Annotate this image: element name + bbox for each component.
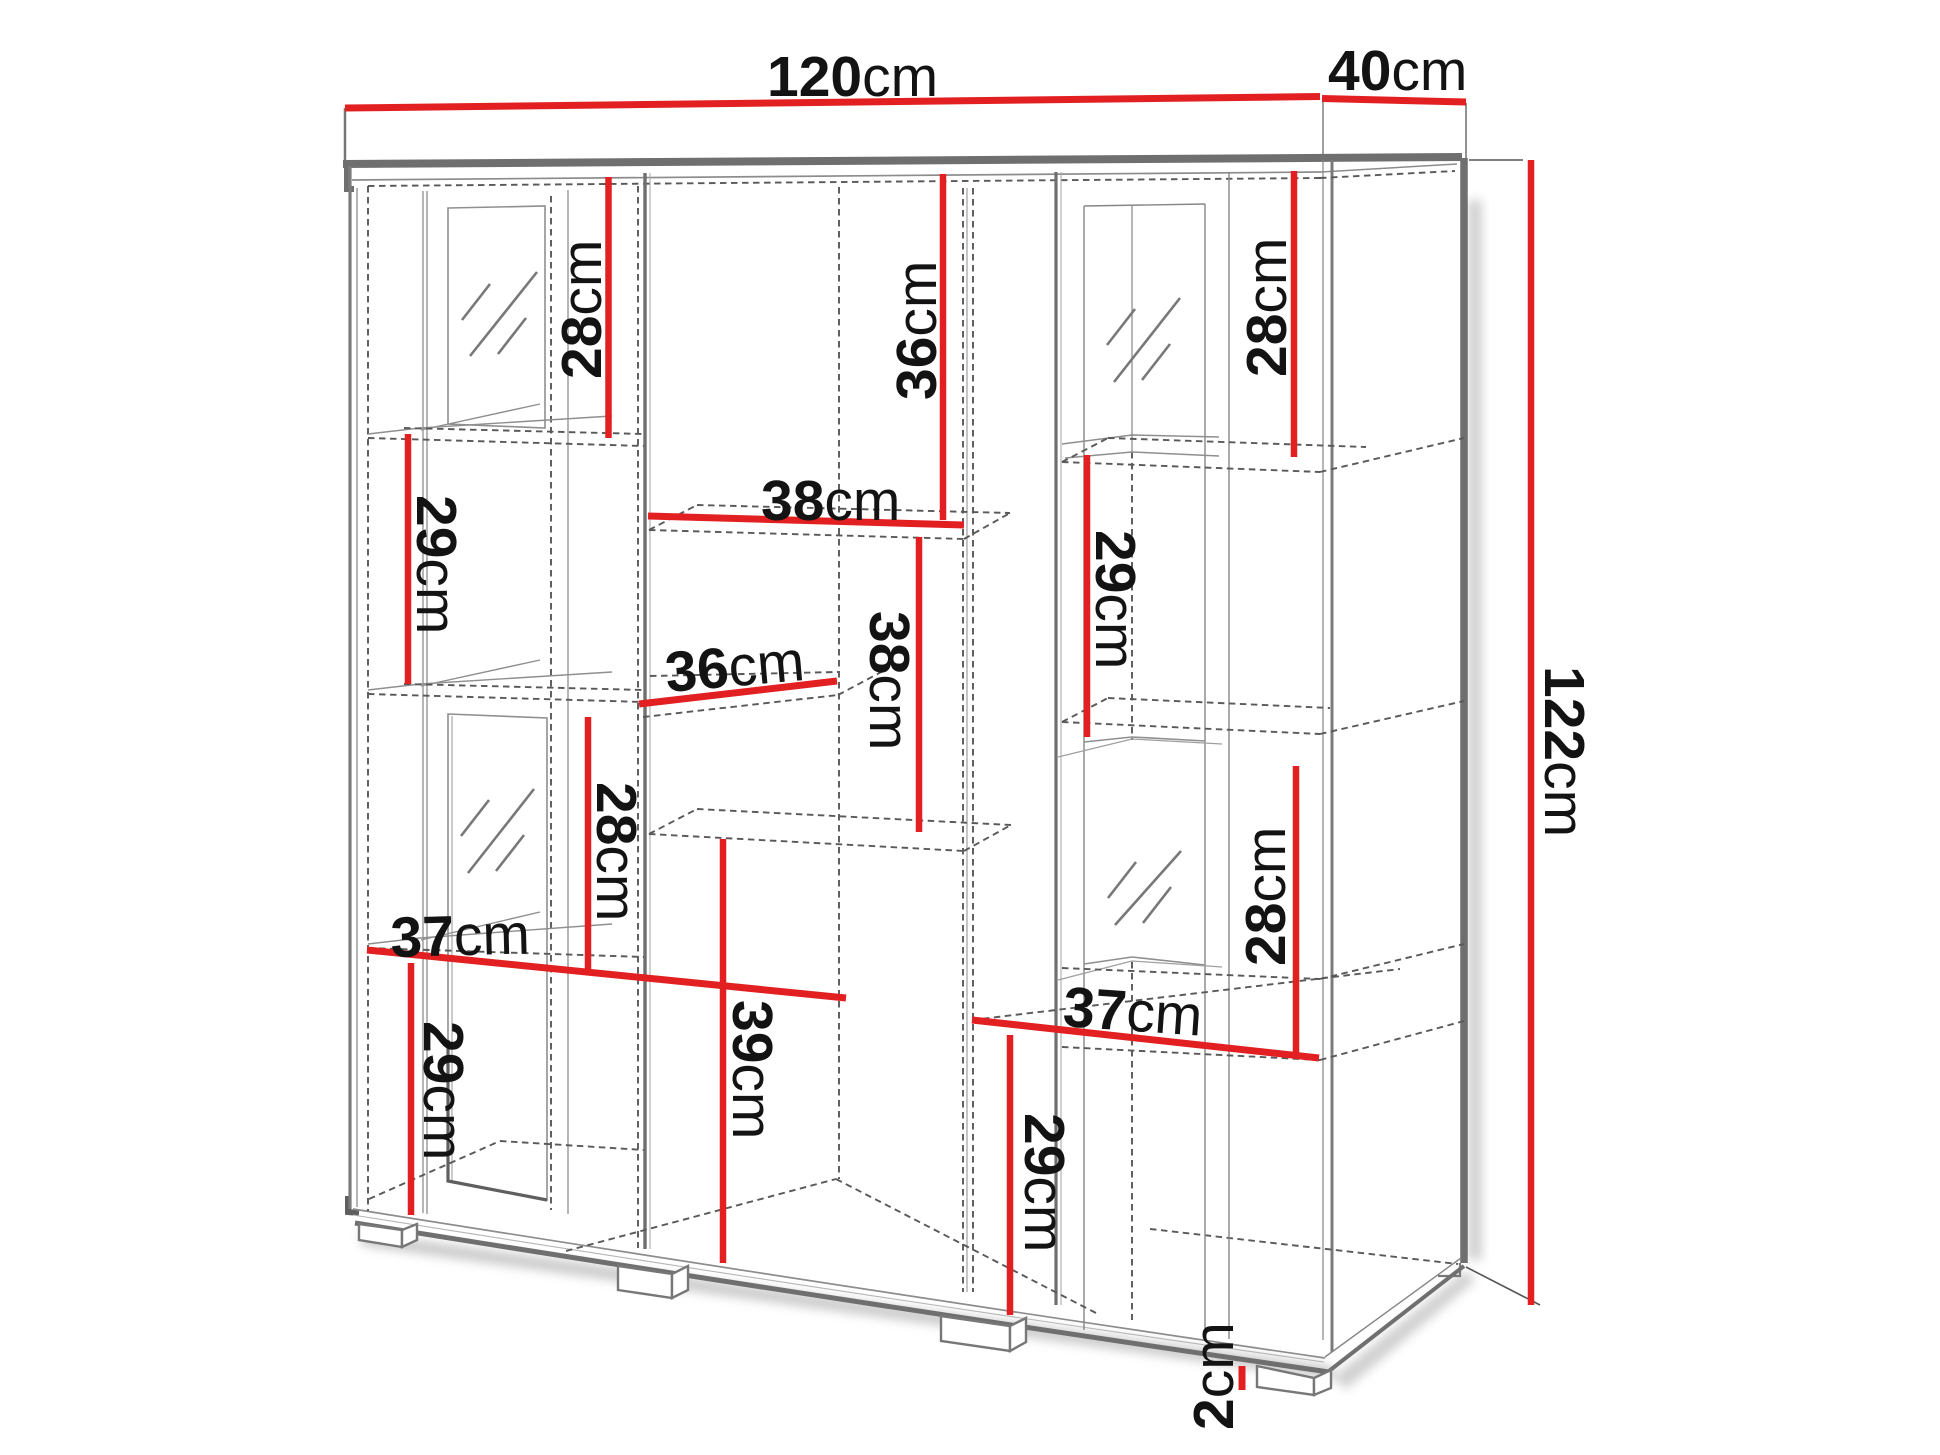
svg-text:28cm: 28cm — [584, 782, 648, 921]
svg-text:40cm: 40cm — [1328, 39, 1467, 103]
svg-text:120cm: 120cm — [767, 45, 938, 109]
svg-text:29cm: 29cm — [1083, 530, 1147, 669]
svg-text:38cm: 38cm — [761, 469, 900, 533]
svg-text:28cm: 28cm — [1235, 238, 1299, 377]
svg-text:28cm: 28cm — [1234, 827, 1298, 966]
svg-text:37cm: 37cm — [1061, 975, 1205, 1049]
svg-text:37cm: 37cm — [390, 902, 531, 970]
svg-text:38cm: 38cm — [857, 611, 921, 750]
svg-text:39cm: 39cm — [720, 1000, 784, 1139]
svg-text:28cm: 28cm — [550, 240, 614, 379]
svg-text:2cm: 2cm — [1182, 1322, 1246, 1430]
svg-text:36cm: 36cm — [663, 629, 807, 705]
svg-text:29cm: 29cm — [1012, 1113, 1076, 1252]
svg-text:29cm: 29cm — [404, 495, 468, 634]
svg-text:29cm: 29cm — [411, 1021, 475, 1160]
svg-text:36cm: 36cm — [885, 261, 949, 400]
svg-text:122cm: 122cm — [1532, 666, 1596, 837]
